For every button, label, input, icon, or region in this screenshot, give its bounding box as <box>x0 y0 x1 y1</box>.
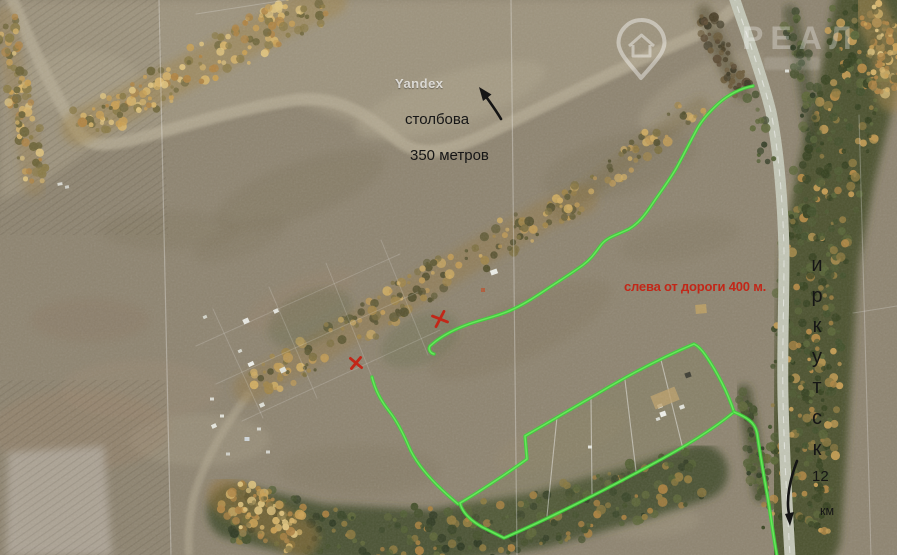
map-graphics <box>0 0 897 555</box>
satellite-map-canvas[interactable]: Yandex столбова 350 метров слева от доро… <box>0 0 897 555</box>
